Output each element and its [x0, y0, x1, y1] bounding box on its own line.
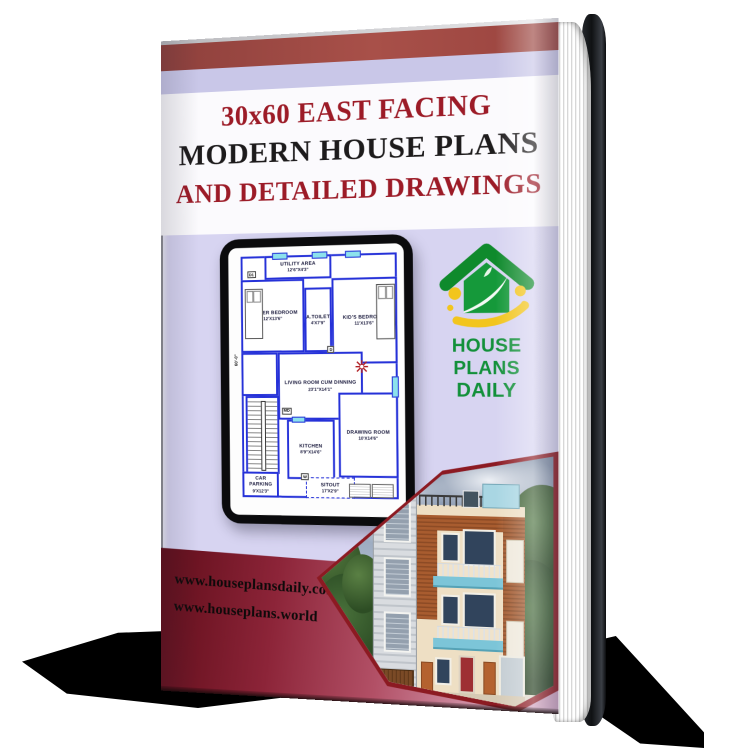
room-dims: 23'1"X14'1" — [308, 386, 332, 391]
room-attached-toilet: A.TOILET 4'X7'9" — [304, 287, 332, 352]
bed-icon — [244, 289, 263, 339]
house-elevation-render — [322, 451, 554, 709]
entrance-door — [458, 656, 474, 695]
book-mockup-scene: 30x60 EAST FACING MODERN HOUSE PLANS AND… — [0, 0, 750, 750]
tower-window — [383, 557, 410, 598]
lattice-panel — [506, 539, 523, 583]
window-marker — [272, 253, 287, 260]
room-dims: 4'X7'9" — [311, 320, 325, 326]
brand-logo: HOUSE PLANS DAILY — [418, 238, 557, 403]
book-front-cover: 30x60 EAST FACING MODERN HOUSE PLANS AND… — [161, 18, 559, 714]
brand-name-line-2: DAILY — [418, 379, 557, 402]
rooftop-box — [482, 483, 520, 509]
room-powder — [242, 353, 278, 396]
window — [441, 595, 460, 626]
side-door — [483, 662, 496, 695]
door-mark: D1 — [247, 271, 256, 278]
room-label: CAR PARKING — [245, 476, 277, 489]
room-dims: 10'X14'6" — [358, 436, 378, 441]
window-marker — [392, 376, 399, 397]
door-mark: D — [327, 346, 334, 353]
window — [441, 532, 460, 563]
brand-name-line-1: HOUSE PLANS — [418, 334, 557, 380]
window — [463, 592, 496, 630]
rooftop-window — [463, 490, 479, 508]
elevation-hexagon — [317, 445, 559, 714]
room-dims: 12'X13'6" — [263, 316, 282, 322]
tower-window — [383, 611, 410, 652]
tower-window — [383, 502, 410, 543]
side-door — [421, 661, 433, 692]
room-dims: 9'X12'3" — [253, 488, 270, 494]
ceiling-fan-icon — [355, 359, 369, 373]
staircase — [245, 396, 280, 474]
room-dims: 12'6"X4'3" — [287, 267, 308, 273]
door-mark: W — [301, 473, 309, 480]
house-plans-daily-logo-icon — [436, 238, 537, 330]
window — [463, 529, 496, 566]
plan-side-dimension: 60'-0" — [235, 354, 239, 366]
door-mark: MD — [282, 408, 292, 415]
room-dims: 11'X13'6" — [354, 321, 373, 327]
bed-icon — [376, 284, 396, 340]
veranda-glass — [498, 655, 524, 699]
window-marker — [311, 252, 327, 259]
window-marker — [292, 417, 306, 423]
window — [435, 657, 451, 685]
title-panel: 30x60 EAST FACING MODERN HOUSE PLANS AND… — [161, 75, 559, 236]
room-car-parking: CAR PARKING 9'X12'3" — [243, 471, 279, 498]
wood-cladding-column-left — [417, 514, 438, 619]
window-marker — [345, 251, 361, 258]
